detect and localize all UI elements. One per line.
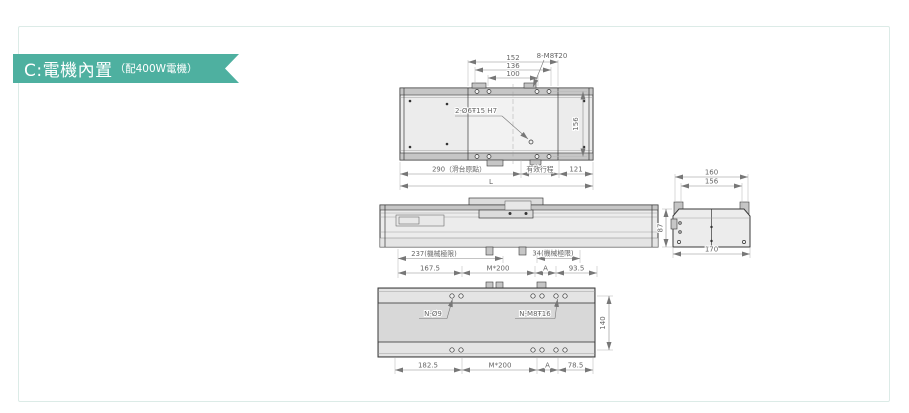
label-n-m8: N-M8Ŧ16 [519,310,551,318]
pin-hole-callout: 2-Ø6Ŧ15 H7 [455,107,497,115]
dim-170-end: 170 [705,246,718,254]
top-view [400,83,593,166]
dim-34-mech-limit: 34(機械極限) [532,249,573,258]
page: C:電機內置 （配400W電機） [0,0,909,413]
thread-callout: 8-M8Ŧ20 [537,52,568,60]
dim-156-top: 156 [572,117,580,131]
technical-drawing: 152 136 100 8-M8Ŧ20 2-Ø6Ŧ15 H7 156 290（滑… [0,0,909,413]
dim-160-end: 160 [705,169,718,177]
dim-93-5: 93.5 [569,265,585,273]
dim-152: 152 [506,54,519,62]
dim-m200-top: M*200 [487,265,510,273]
dim-167-5: 167.5 [420,265,440,273]
bottom-view [378,282,595,357]
dim-237-mech-limit: 237(機械極限) [411,249,457,258]
dim-290-origin: 290（滑台原點） [432,165,486,174]
dim-87-end: 87 [657,224,665,233]
dim-78-5: 78.5 [568,362,584,370]
dim-m200-bottom: M*200 [489,362,512,370]
dim-L: L [489,178,493,186]
label-n-dia9: N-Ø9 [424,310,442,318]
dim-182-5: 182.5 [418,362,438,370]
dim-121: 121 [569,166,582,174]
dim-A-bottom: A [545,362,550,370]
side-view [380,198,658,255]
dim-140: 140 [599,316,607,329]
dim-100: 100 [506,70,519,78]
dim-156-end: 156 [705,178,719,186]
end-view [671,202,750,247]
dim-A-top: A [543,265,548,273]
dim-136: 136 [506,62,520,70]
side-view-dimensions: 237(機械極限) 34(機械極限) 167.5 M*200 A 93.5 [398,249,597,279]
dim-effective-stroke: 有效行程 [526,165,553,174]
